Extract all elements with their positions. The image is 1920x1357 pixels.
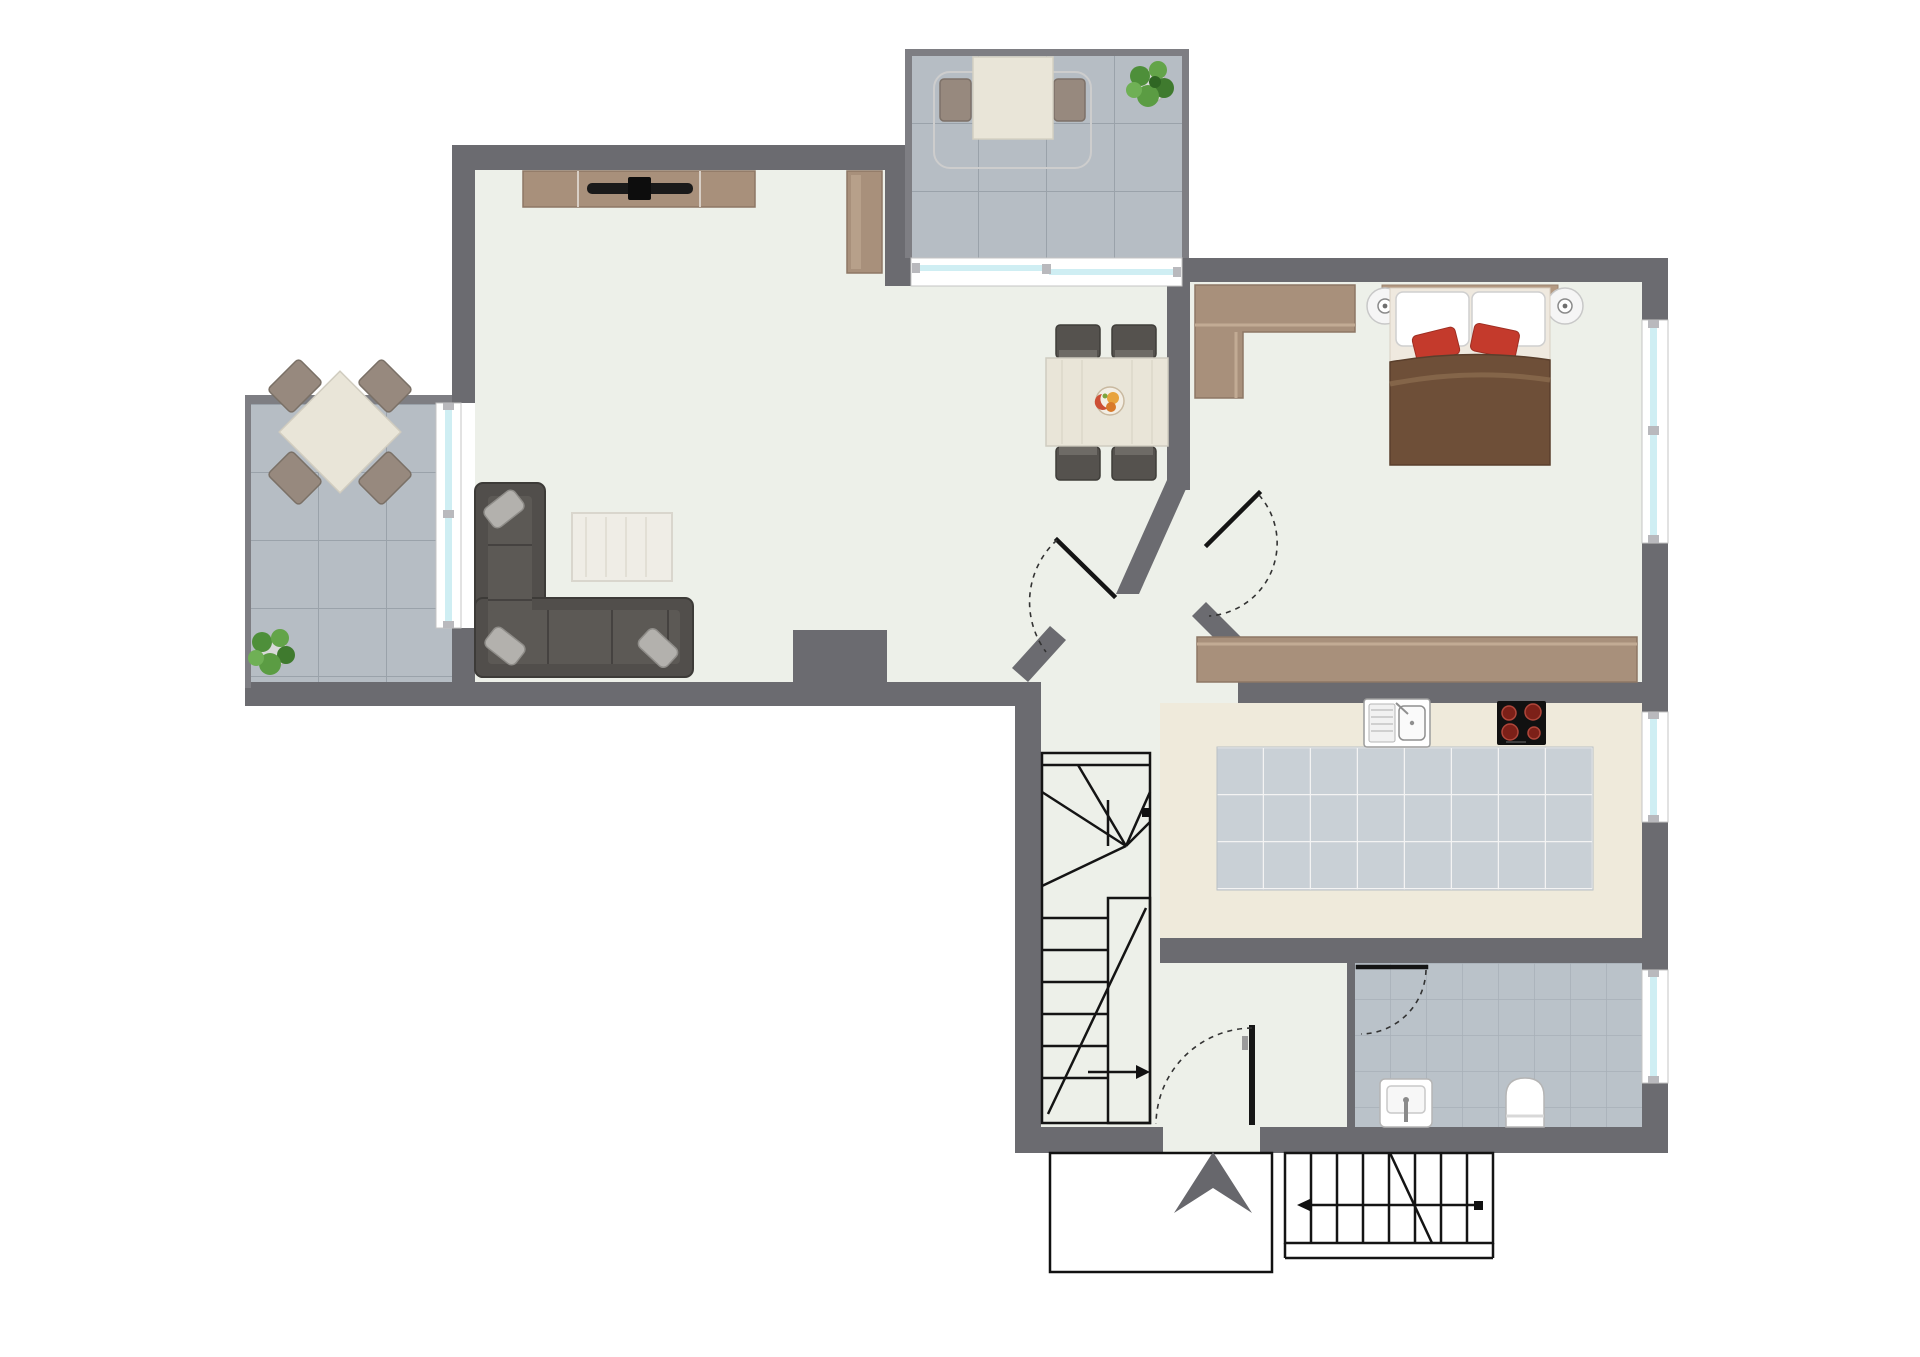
left-terrace-wall-left <box>245 395 251 688</box>
wall-stub-living <box>793 630 887 682</box>
bathroom-sink-icon <box>1380 1079 1432 1127</box>
fruit-bowl-icon <box>1095 387 1124 415</box>
entry-door-handle <box>1242 1036 1248 1050</box>
bedside-lamp-right <box>1547 288 1583 324</box>
entry-porch-outline <box>1050 1153 1272 1272</box>
exterior-entry <box>1050 1152 1493 1272</box>
wall-bottom-long <box>245 682 1041 706</box>
exterior-stair-arrow <box>1297 1198 1312 1212</box>
entrance-arrow-marker <box>1174 1152 1252 1213</box>
hall-floor <box>1041 682 1160 1127</box>
kitchen-sink-icon <box>1364 699 1430 747</box>
toilet-icon <box>1506 1078 1544 1127</box>
bathroom-window <box>1642 970 1668 1083</box>
tv-sideboard <box>523 171 755 207</box>
top-terrace-sliding-door <box>911 258 1182 286</box>
tall-cabinet-highlight <box>851 175 861 269</box>
bedroom-window <box>1642 320 1668 543</box>
wall-bottom-left-of-door <box>1015 1127 1163 1153</box>
wall-kitchen-bottom <box>1160 938 1642 963</box>
entry-threshold-floor <box>1163 1127 1260 1153</box>
wall-bath-west-thin <box>1347 963 1355 1127</box>
wall-terrace-jamb-left <box>885 258 911 286</box>
floor-plan-page <box>0 0 1920 1357</box>
double-bed <box>1390 288 1550 465</box>
chair-seat-edge <box>1059 447 1097 455</box>
top-terrace-wall-right <box>1182 49 1189 258</box>
tv-base-icon <box>628 177 651 200</box>
chair-seat-edge <box>1059 350 1097 358</box>
wall-bottom-right-of-door <box>1260 1127 1668 1153</box>
terrace-chair-left <box>940 79 971 121</box>
terrace-chair-right <box>1054 79 1085 121</box>
exterior-stairs <box>1285 1153 1493 1258</box>
left-terrace-glass-door <box>436 403 461 628</box>
wall-bedroom-top <box>1182 258 1668 282</box>
entry-door-leaf <box>1249 1025 1255 1125</box>
wall-dining-bedroom-divider <box>1167 258 1190 490</box>
wall-right-2 <box>1642 543 1668 712</box>
blanket <box>1390 354 1550 465</box>
wall-living-top <box>452 145 907 170</box>
wall-right-3 <box>1642 822 1668 970</box>
chair-seat-edge <box>1115 447 1153 455</box>
top-terrace-wall-left <box>905 49 912 258</box>
chair-seat-edge <box>1115 350 1153 358</box>
wall-hall-west <box>1015 706 1041 1127</box>
kitchen-window <box>1642 712 1668 822</box>
wall-right-1 <box>1642 258 1668 320</box>
rug <box>572 513 672 581</box>
cooktop-icon <box>1497 701 1546 745</box>
wall-living-left-upper <box>452 145 475 403</box>
top-terrace-table <box>973 57 1053 139</box>
kitchen-tile-area <box>1217 747 1593 890</box>
top-terrace-wall-top <box>905 49 1189 56</box>
floor-plan-drawing <box>0 0 1920 1357</box>
wall-kitchen-top <box>1238 682 1642 703</box>
